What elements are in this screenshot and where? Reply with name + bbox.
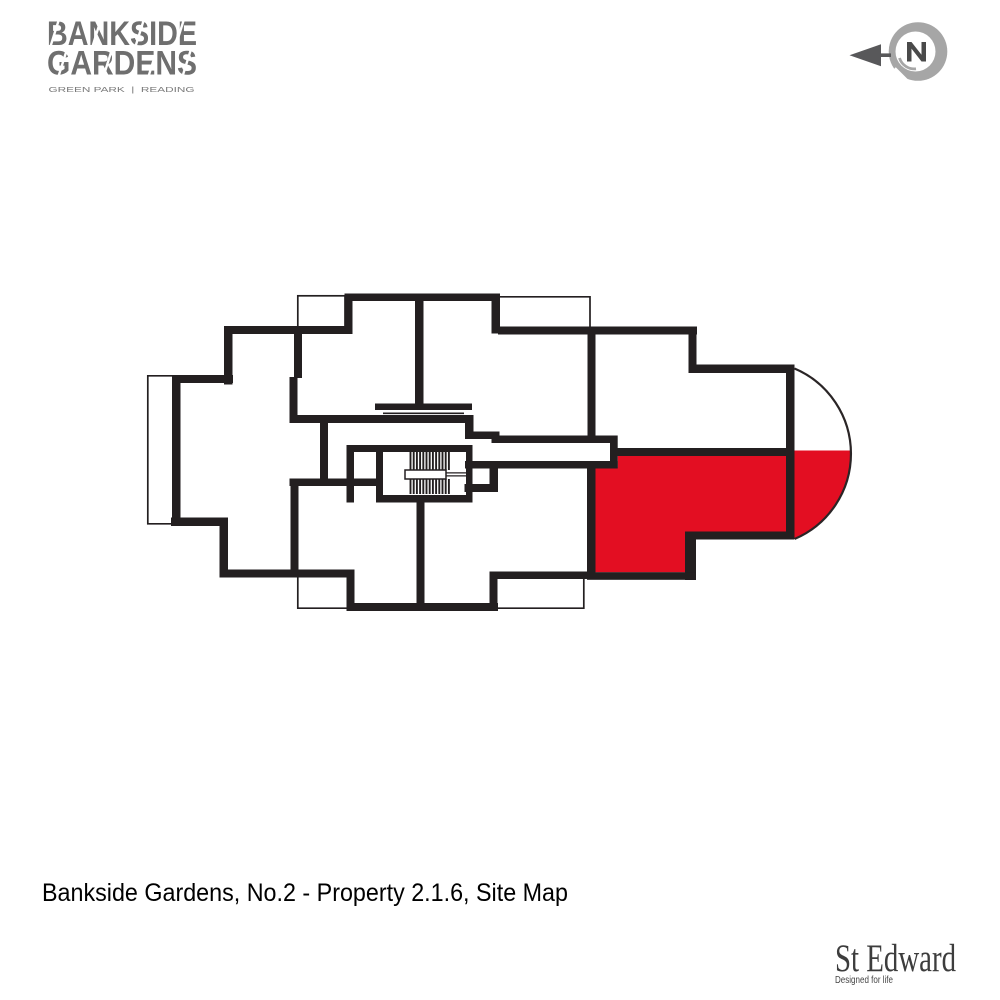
svg-text:Bankside Gardens, No.2 - Prope: Bankside Gardens, No.2 - Property 2.1.6,…: [42, 879, 568, 907]
svg-text:GARDENS: GARDENS: [47, 45, 197, 83]
svg-text:Designed for life: Designed for life: [835, 974, 893, 986]
svg-text:GREEN PARK | READING: GREEN PARK | READING: [49, 87, 195, 94]
